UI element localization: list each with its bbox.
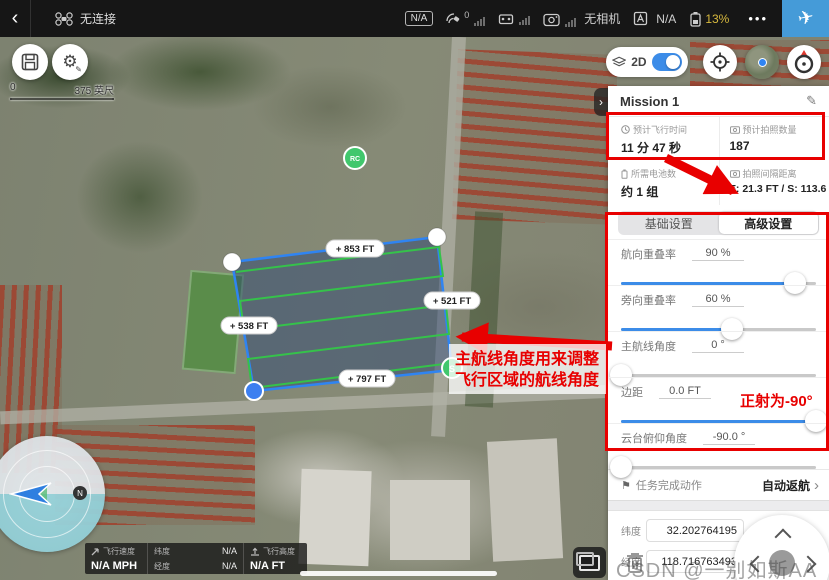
route-angle-value[interactable]: 0 °: [692, 339, 744, 353]
altitude-icon: [250, 547, 260, 556]
stat-battery-needed: 所需电池数 约 1 组: [608, 161, 719, 205]
mission-panel: Mission 1 ✎ 预计飞行时间 11 分 47 秒 预计拍照数量 187 …: [608, 86, 829, 580]
margin-value[interactable]: 0.0 FT: [659, 385, 711, 399]
map-2d-toggle[interactable]: [652, 53, 682, 71]
latitude-label: 纬度: [613, 523, 641, 538]
flight-mode-icon: [633, 11, 648, 26]
tab-basic-settings[interactable]: 基础设置: [619, 212, 719, 234]
speed-value: N/A MPH: [91, 560, 141, 572]
satellite-count: 0: [464, 10, 469, 20]
save-mission-button[interactable]: [12, 44, 48, 80]
map-mode-pill: 2D: [606, 47, 688, 77]
more-menu-button[interactable]: •••: [748, 11, 768, 26]
save-icon: [21, 53, 39, 71]
home-indicator[interactable]: [300, 571, 497, 576]
minimap-button[interactable]: [745, 45, 779, 79]
map-scale-bar: 0 375 英尺: [10, 82, 114, 100]
map-trees: [465, 211, 503, 407]
clock-icon: [621, 125, 630, 134]
panel-divider: [608, 500, 829, 511]
connection-status-label: 无连接: [80, 10, 116, 27]
altitude-value: N/A FT: [250, 560, 301, 572]
mission-title: Mission 1: [620, 94, 679, 109]
telemetry-bar: 飞行速度 N/A MPH 纬度N/A 经度N/A 飞行高度 N/A FT: [85, 543, 307, 574]
airplane-icon: ✈: [795, 6, 815, 32]
drone-icon: [55, 12, 73, 26]
north-indicator: N: [73, 486, 87, 500]
telemetry-lng-value: N/A: [222, 561, 237, 572]
compass-icon: [792, 49, 816, 75]
rc-signal-bars-icon: [519, 16, 530, 25]
map-road: [0, 385, 615, 425]
mission-planning-app: ‹ 无连接 N/A 0: [0, 0, 829, 580]
mission-header: Mission 1 ✎: [608, 86, 829, 117]
dpad-up-chevron-icon[interactable]: [775, 529, 792, 546]
mission-stats: 预计飞行时间 11 分 47 秒 预计拍照数量 187 所需电池数 约 1 组 …: [608, 117, 829, 205]
stat-flight-time: 预计飞行时间 11 分 47 秒: [608, 117, 719, 161]
map-sports-field: [182, 270, 245, 374]
minimap-position-dot: [758, 58, 767, 67]
locate-me-button[interactable]: [703, 45, 737, 79]
battery-percent: 13%: [705, 12, 729, 26]
battery-icon: [689, 11, 702, 27]
satellite-icon: [445, 12, 461, 26]
edit-mission-icon[interactable]: ✎: [806, 93, 817, 109]
camera-icon: [543, 13, 560, 27]
side-overlap-value[interactable]: 60 %: [692, 293, 744, 307]
camera-icon: [730, 126, 740, 134]
map-road: [431, 37, 466, 437]
scale-start: 0: [10, 82, 16, 97]
camera-icon: [730, 170, 740, 178]
speed-icon: [91, 547, 100, 556]
stat-photo-interval: 拍照间隔距离 F: 21.3 FT / S: 113.6 FT: [719, 161, 829, 205]
rc-status: [498, 12, 530, 25]
battery-icon: [621, 169, 628, 179]
remote-controller-icon: [498, 12, 514, 25]
takeoff-button[interactable]: ✈: [782, 0, 829, 37]
mission-settings-button[interactable]: ⚙ ✎: [52, 44, 88, 80]
flag-icon: ⚑: [621, 479, 631, 492]
gimbal-pitch-value[interactable]: -90.0 °: [703, 431, 755, 445]
map-layers-button[interactable]: [573, 547, 606, 578]
map-buildings-red-roofs: [452, 49, 618, 224]
watermark: CSDN @一别如斯AA: [616, 554, 817, 580]
camera-status: 无相机: [543, 10, 620, 27]
top-status-bar: ‹ 无连接 N/A 0: [0, 0, 829, 37]
slider-row-gimbal-pitch: 云台俯仰角度 -90.0 °: [608, 423, 829, 469]
chevron-right-icon: ›: [814, 477, 819, 494]
map-building-white: [390, 480, 470, 560]
gps-mode-badge: N/A: [405, 11, 434, 26]
back-icon: ‹: [12, 7, 19, 30]
camera-signal-bars-icon: [565, 18, 576, 27]
panel-collapse-handle[interactable]: ›: [594, 88, 608, 116]
forward-overlap-value[interactable]: 90 %: [692, 247, 744, 261]
satellite-status: 0: [445, 12, 485, 26]
stat-photo-count: 预计拍照数量 187: [719, 117, 829, 161]
back-button[interactable]: ‹: [0, 0, 31, 37]
aircraft-status: 无连接: [55, 10, 116, 27]
locate-crosshair-icon: [709, 51, 731, 73]
map-building-white: [298, 469, 371, 566]
gimbal-pitch-slider[interactable]: [621, 456, 816, 478]
annotation-ortho-note: 正射为-90°: [740, 390, 813, 411]
map-building-white: [487, 438, 563, 561]
map-mode-label: 2D: [631, 55, 646, 69]
scale-end: 375 英尺: [75, 82, 114, 97]
slider-knob[interactable]: [610, 456, 632, 478]
satellite-signal-bars-icon: [474, 17, 485, 26]
compass-orientation-button[interactable]: [787, 45, 821, 79]
slider-row-forward-overlap: 航向重叠率 90 %: [608, 239, 829, 285]
layers-icon: [612, 56, 626, 68]
battery-status: 13%: [689, 11, 729, 27]
finish-action-value: 自动返航: [762, 477, 810, 494]
settings-tabs: 基础设置 高级设置: [618, 211, 819, 235]
slider-row-side-overlap: 旁向重叠率 60 %: [608, 285, 829, 331]
flight-mode-status: N/A: [633, 11, 676, 26]
aircraft-heading-arrow-icon: [9, 480, 53, 508]
latitude-input[interactable]: 32.202764195: [646, 519, 744, 542]
flight-mode-value: N/A: [656, 12, 676, 26]
edit-pencil-mini-icon: ✎: [75, 65, 82, 74]
tab-advanced-settings[interactable]: 高级设置: [719, 212, 819, 234]
telemetry-lat-value: N/A: [222, 546, 237, 557]
overlapping-frames-icon: [579, 555, 600, 571]
slider-row-route-angle: 主航线角度 0 °: [608, 331, 829, 377]
camera-status-label: 无相机: [584, 10, 620, 27]
